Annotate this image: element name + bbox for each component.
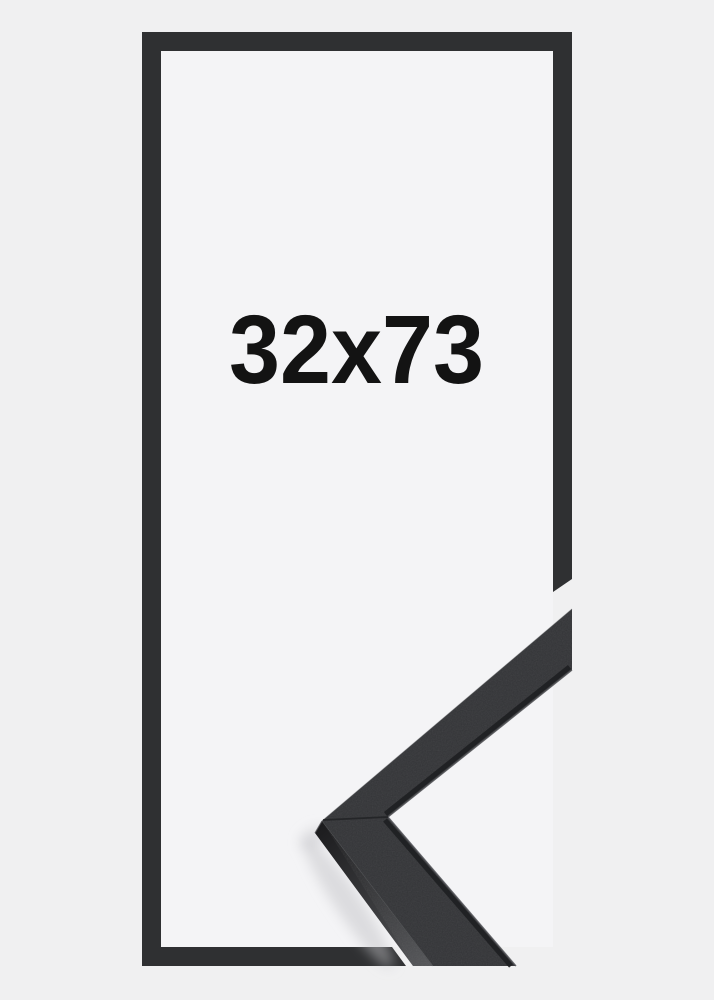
frame-size-illustration: 32x73 bbox=[0, 0, 714, 1000]
frame-size-label: 32x73 bbox=[229, 295, 484, 404]
product-image: 32x73 bbox=[0, 0, 714, 1000]
